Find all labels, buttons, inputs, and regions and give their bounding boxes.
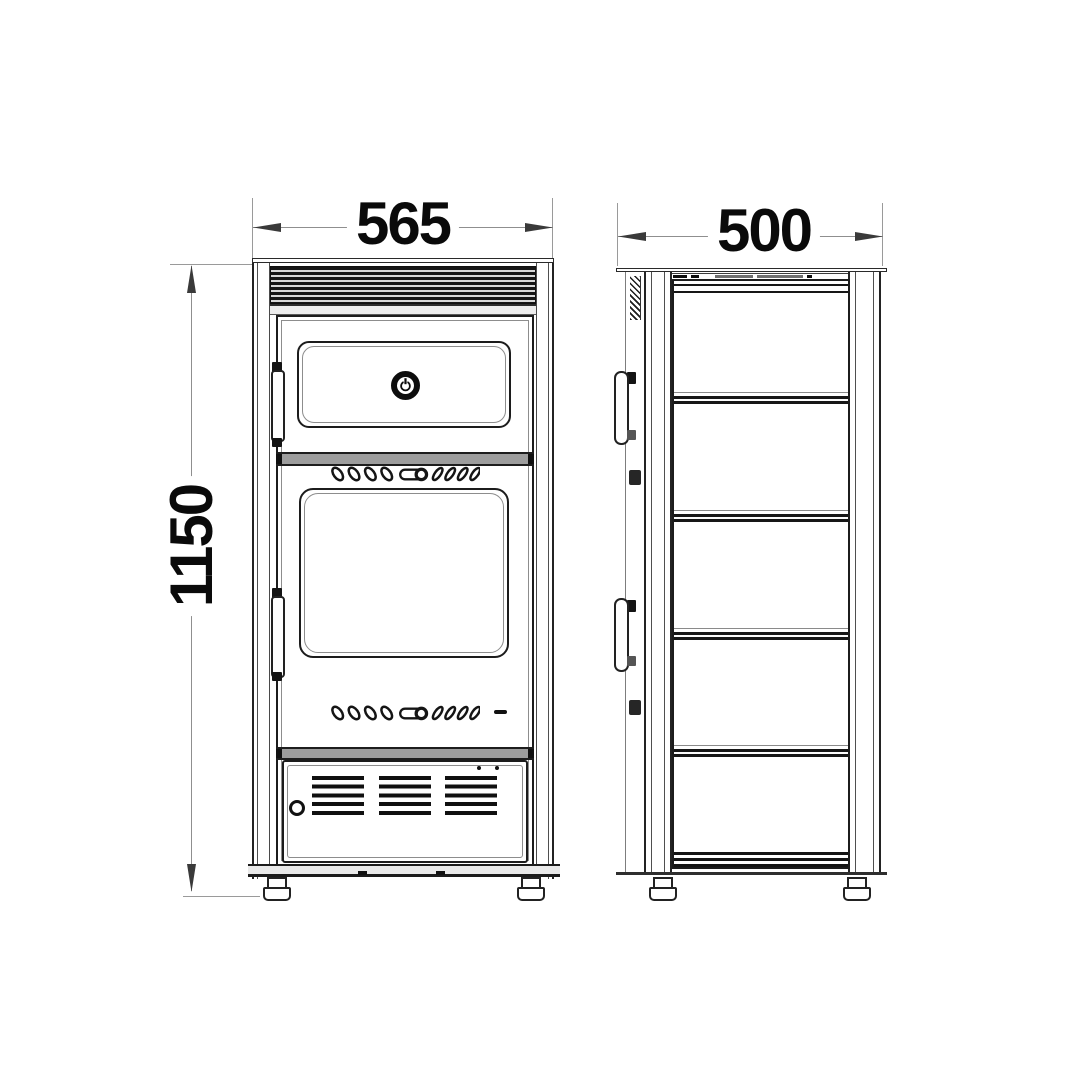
side-divider-3: [674, 628, 848, 642]
bottom-door-latch-knob: [289, 800, 305, 816]
vent-grille-group-3: [445, 776, 497, 819]
side-lower-handle-mount-b: [627, 656, 636, 666]
side-back-rail: [848, 272, 881, 873]
side-foot-back: [843, 877, 871, 901]
side-divider-2: [674, 510, 848, 524]
front-foot-left: [263, 877, 291, 901]
height-extension-line-top: [170, 264, 252, 265]
power-button-icon: [390, 370, 421, 401]
side-front-rail: [644, 272, 672, 873]
side-divider-4: [674, 745, 848, 759]
base-tick-1: [358, 871, 367, 875]
strip-segment: [715, 275, 753, 278]
door-screw-dot-1: [477, 766, 481, 770]
flue-spring-hatch: [630, 276, 641, 320]
strip-segment: [757, 275, 803, 278]
front-grille-lower-trim: [270, 304, 536, 315]
vent-dash-mark: [494, 710, 507, 714]
strip-segment: [807, 275, 812, 278]
front-top-grille: [270, 266, 536, 304]
side-foot-front: [649, 877, 677, 901]
arrowhead-right-icon: [525, 223, 553, 232]
front-top-cap: [252, 258, 554, 263]
arrowhead-left-icon: [253, 223, 281, 232]
arrowhead-up-icon: [187, 265, 196, 293]
side-knob-lower: [629, 700, 641, 715]
depth-dimension-label: 500: [708, 201, 820, 261]
vent-slots-row-1: [330, 463, 480, 485]
vent-grille-group-1: [312, 776, 364, 819]
upper-handle-mount-bottom: [272, 438, 282, 447]
side-outer-edge-line: [625, 272, 626, 873]
lower-door-handle: [271, 596, 285, 678]
firebox-window: [299, 488, 509, 658]
upper-door-handle: [271, 370, 285, 442]
side-upper-handle-mount-b: [627, 430, 636, 440]
door-screw-dot-2: [495, 766, 499, 770]
front-left-rail: [252, 263, 270, 879]
front-foot-right: [517, 877, 545, 901]
side-knob-upper: [629, 470, 641, 485]
stove-dimension-diagram: 565 500 1150: [0, 0, 1080, 1080]
height-extension-line-bottom: [183, 896, 260, 897]
base-tick-2: [436, 871, 445, 875]
strip-segment: [673, 275, 687, 278]
vent-grille-group-2: [379, 776, 431, 819]
width-dimension-label: 565: [347, 194, 459, 254]
side-base-line: [616, 872, 887, 875]
front-base-band: [248, 864, 560, 877]
lower-handle-mount-bottom: [272, 672, 282, 681]
side-bottom-band: [674, 852, 848, 867]
arrowhead-left-icon: [618, 232, 646, 241]
strip-segment: [691, 275, 699, 278]
side-top-band: [674, 284, 848, 293]
side-divider-1: [674, 392, 848, 406]
front-right-rail: [536, 263, 554, 879]
arrowhead-right-icon: [855, 232, 883, 241]
arrowhead-down-icon: [187, 864, 196, 892]
height-dimension-label: 1150: [162, 476, 222, 616]
side-body-panel: [672, 279, 850, 869]
vent-slots-row-2: [330, 702, 480, 724]
front-divider-band-2: [276, 747, 534, 760]
